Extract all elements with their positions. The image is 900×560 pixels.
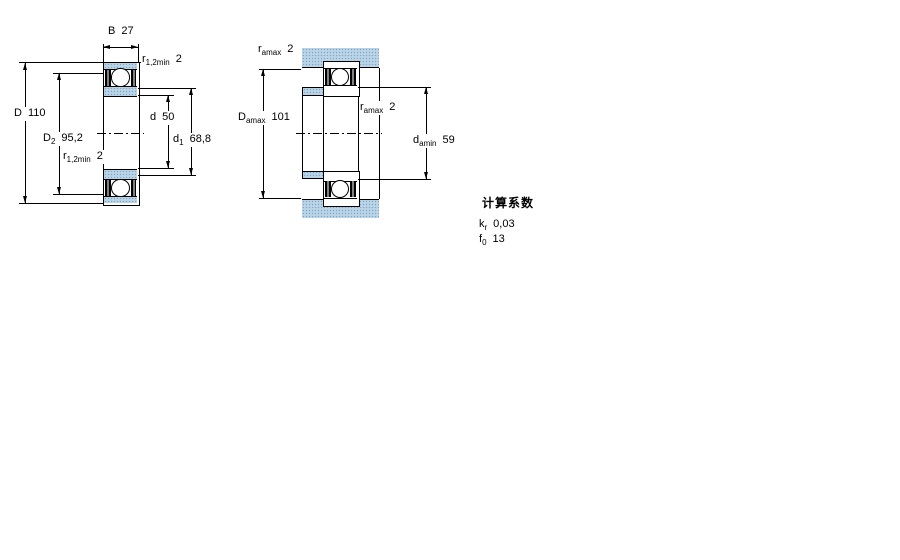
calculation-factors-title: 计算系数 — [481, 197, 535, 210]
arrowhead — [166, 161, 170, 168]
ball — [331, 180, 349, 198]
dim-value: 110 — [28, 107, 46, 119]
dim-value: 2 — [176, 53, 182, 65]
factor-row-f0: f013 — [478, 233, 506, 247]
arrowhead — [57, 187, 61, 194]
seal-left-bottom — [105, 180, 111, 196]
ball-top — [111, 68, 129, 86]
ball-bottom — [111, 179, 129, 197]
dim-subscript: 1,2min — [146, 58, 170, 67]
arrowhead — [424, 172, 428, 179]
dim-symbol: B — [108, 25, 115, 37]
dim-line-d1 — [191, 88, 192, 175]
seal-right-top — [131, 70, 137, 86]
factor-row-kr: kr0,03 — [478, 218, 516, 232]
ball — [331, 68, 349, 86]
dim-value: 59 — [442, 134, 454, 146]
dim-label-B: B27 — [107, 25, 135, 39]
seal-right — [350, 181, 356, 197]
shaft-surface-line — [302, 171, 324, 172]
arrowhead — [23, 63, 27, 70]
dim-label-D: D110 — [13, 107, 47, 121]
bearing-section-bottom — [323, 171, 360, 207]
dim-symbol: d — [150, 111, 156, 123]
dim-label-ramax-mid: ramax2 — [359, 101, 396, 115]
dim-line-Damax — [263, 69, 264, 198]
arrowhead — [23, 196, 27, 203]
dim-symbol: D — [238, 111, 246, 123]
dim-label-r12min-bottom: r1,2min2 — [62, 150, 104, 164]
ext-line — [259, 69, 302, 70]
dim-value: 68,8 — [190, 133, 211, 145]
dim-value: 2 — [97, 150, 103, 162]
dim-label-d1: d168,8 — [172, 133, 212, 147]
dim-symbol: D — [43, 132, 51, 144]
ring-boundary-line — [104, 96, 137, 97]
shaft-shoulder-bottom — [303, 171, 324, 179]
axis-centerline — [296, 133, 382, 134]
arrowhead — [261, 191, 265, 198]
ext-line — [138, 88, 196, 89]
dim-subscript: 1 — [179, 138, 183, 147]
bearing-body — [103, 62, 140, 206]
dim-label-Damax: Damax101 — [237, 111, 291, 125]
seal-right-bottom — [131, 180, 137, 196]
seal-left — [325, 69, 331, 85]
arrowhead — [166, 95, 170, 102]
dim-label-ramax-top: ramax2 — [257, 43, 294, 57]
ext-line — [138, 168, 174, 169]
dim-value: 2 — [287, 43, 293, 55]
ext-line — [19, 62, 104, 63]
ext-line — [53, 73, 103, 74]
dim-subscript: amax — [262, 48, 282, 57]
dim-label-D2: D295,2 — [42, 132, 84, 146]
dim-value: 2 — [389, 101, 395, 113]
outer-ring-bottom — [104, 197, 137, 203]
arrowhead — [189, 168, 193, 175]
dim-subscript: amax — [364, 106, 384, 115]
dim-label-d: d50 — [149, 111, 175, 125]
dim-subscript: amax — [246, 116, 266, 125]
bearing-section-top — [323, 61, 360, 97]
dim-subscript: amin — [419, 139, 436, 148]
seal-left-top — [105, 70, 111, 86]
arrowhead — [131, 45, 138, 49]
arrowhead — [261, 69, 265, 76]
dim-value: 101 — [272, 111, 290, 123]
seal-right — [350, 69, 356, 85]
dim-value: 50 — [162, 111, 174, 123]
inner-ring-top — [104, 87, 137, 97]
dim-line-damin — [426, 87, 427, 179]
ext-line — [53, 194, 103, 195]
factor-value: 13 — [493, 233, 505, 245]
dim-value: 27 — [121, 25, 133, 37]
bearing-dimension-drawing: B27 r1,2min2 D110 D295,2 r1,2min2 d50 d1… — [0, 0, 900, 560]
shaft-surface-line — [302, 95, 324, 96]
ext-line — [19, 203, 104, 204]
ext-line — [138, 175, 196, 176]
seal-left — [325, 181, 331, 197]
ext-line — [259, 198, 302, 199]
arrowhead — [103, 45, 110, 49]
ring-boundary-line — [324, 198, 357, 199]
arrowhead — [189, 88, 193, 95]
ext-line — [358, 179, 431, 180]
dim-symbol: D — [14, 107, 22, 119]
axis-centerline — [97, 133, 144, 134]
arrowhead — [424, 87, 428, 94]
dim-label-damin: damin59 — [412, 134, 456, 148]
dim-line-d — [168, 95, 169, 168]
dim-value: 95,2 — [61, 132, 82, 144]
dim-label-r12min-top: r1,2min2 — [141, 53, 183, 67]
inner-ring-bottom — [104, 170, 137, 180]
dim-subscript: 2 — [51, 137, 55, 146]
arrowhead — [57, 73, 61, 80]
dim-line-D — [25, 63, 26, 204]
factor-value: 0,03 — [493, 218, 514, 230]
factor-subscript: r — [485, 223, 488, 232]
dim-subscript: 1,2min — [67, 155, 91, 164]
factor-subscript: 0 — [482, 238, 486, 247]
ext-line — [358, 87, 431, 88]
